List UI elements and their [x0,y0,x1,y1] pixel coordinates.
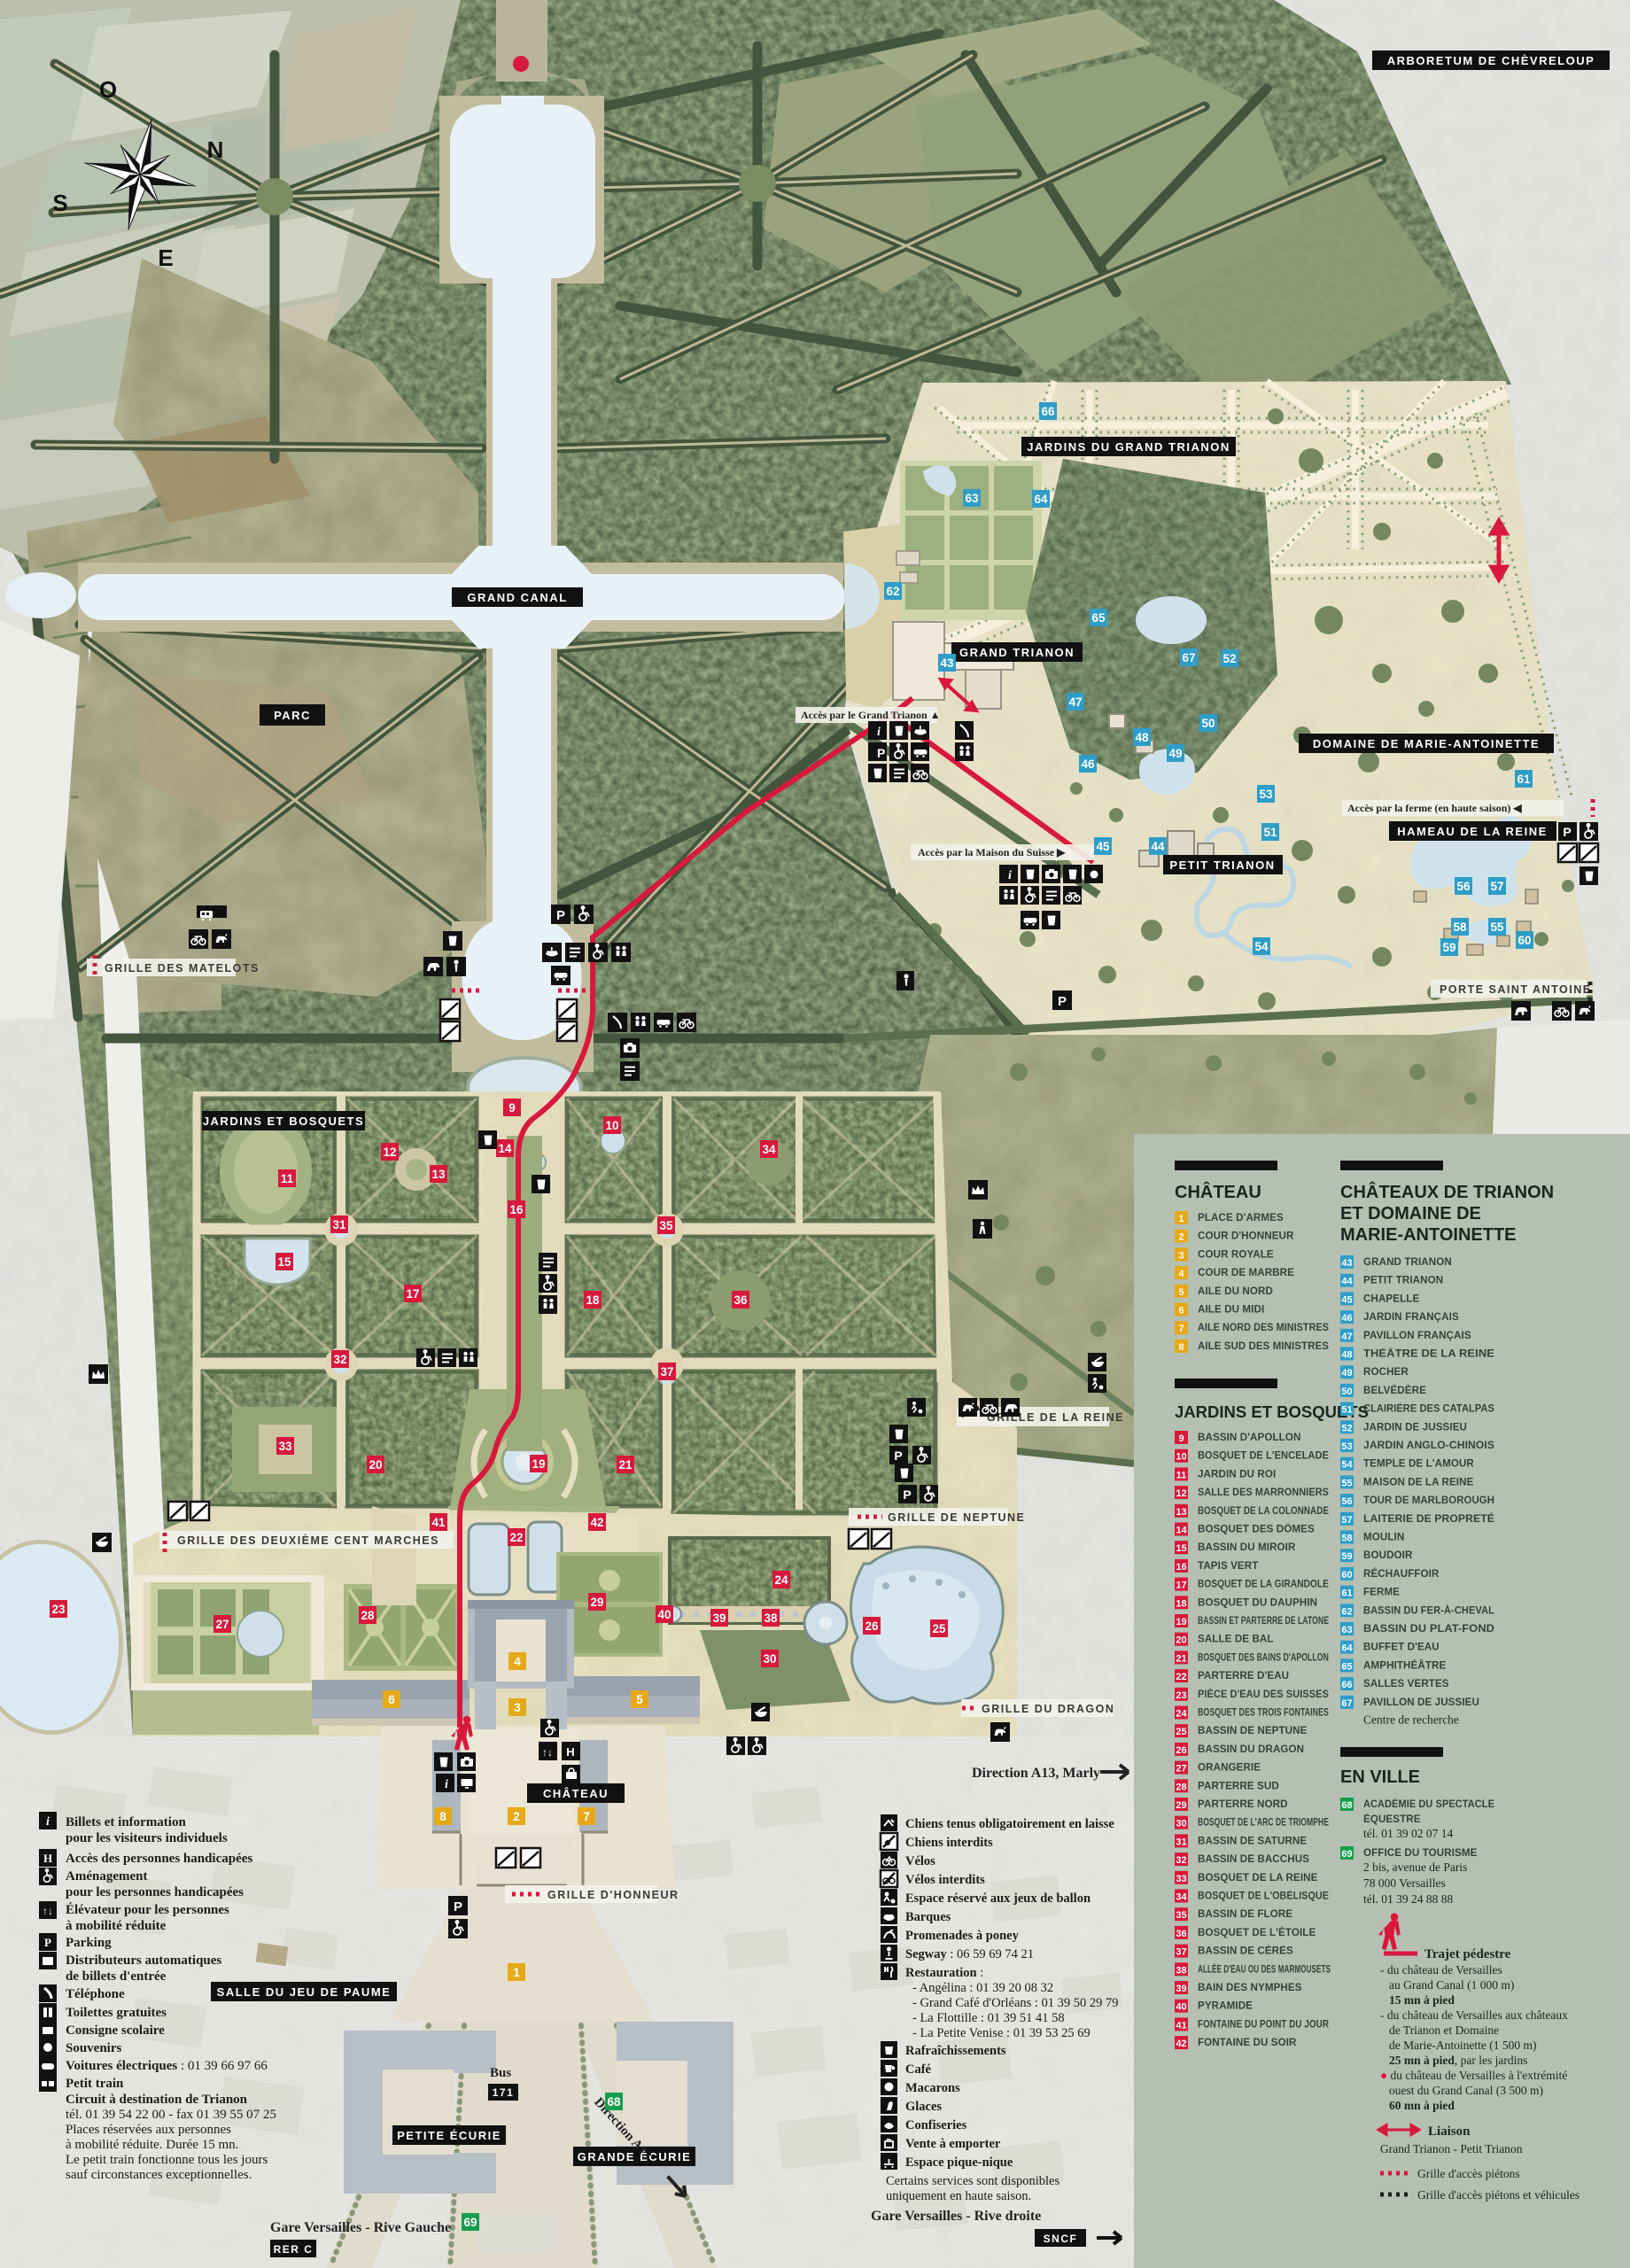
svg-text:PARTERRE NORD: PARTERRE NORD [1198,1798,1288,1810]
svg-text:EN VILLE: EN VILLE [1340,1767,1420,1787]
svg-text:6: 6 [388,1693,395,1706]
svg-text:17: 17 [406,1287,419,1301]
svg-text:37: 37 [660,1365,673,1379]
svg-text:26: 26 [1176,1745,1186,1756]
svg-text:ÉQUESTRE: ÉQUESTRE [1363,1814,1421,1825]
svg-text:P: P [894,1449,902,1463]
svg-text:2: 2 [513,1810,520,1823]
svg-text:8: 8 [1178,1342,1184,1353]
svg-text:10: 10 [1176,1452,1186,1463]
svg-text:49: 49 [1168,747,1182,760]
svg-text:BASSIN DE BACCHUS: BASSIN DE BACCHUS [1198,1853,1309,1865]
svg-text:Téléphone: Téléphone [66,1987,125,2001]
svg-text:Billets et information: Billets et information [66,1815,186,1829]
svg-text:33: 33 [278,1440,292,1453]
svg-text:LAITERIE DE PROPRETÉ: LAITERIE DE PROPRETÉ [1363,1513,1494,1525]
svg-text:Rafraîchissements: Rafraîchissements [905,2044,1006,2058]
svg-text:65: 65 [1341,1661,1352,1672]
svg-text:58: 58 [1453,920,1467,934]
svg-text:AMPHITHÉÂTRE: AMPHITHÉÂTRE [1363,1659,1446,1671]
svg-text:JARDIN ANGLO-CHINOIS: JARDIN ANGLO-CHINOIS [1363,1440,1494,1451]
svg-text:BASSIN DU DRAGON: BASSIN DU DRAGON [1198,1744,1304,1755]
svg-text:E: E [158,245,173,271]
svg-text:Bus: Bus [490,2066,511,2080]
svg-text:Accès par le Grand Trianon ▲: Accès par le Grand Trianon ▲ [801,709,941,721]
svg-text:Grand Trianon - Petit Trianon: Grand Trianon - Petit Trianon [1380,2142,1523,2155]
svg-text:Aménagement: Aménagement [66,1869,147,1884]
svg-text:- du château de Versailles aux: - du château de Versailles aux châteaux [1380,2008,1568,2022]
svg-text:26: 26 [865,1619,879,1633]
svg-text:TAPIS VERT: TAPIS VERT [1198,1560,1258,1572]
svg-text:34: 34 [762,1143,776,1156]
svg-text:FONTAINE DU POINT DU JOUR: FONTAINE DU POINT DU JOUR [1198,2018,1329,2030]
svg-text:Vélos interdits: Vélos interdits [905,1873,985,1887]
svg-text:Chiens tenus obligatoirement e: Chiens tenus obligatoirement en laisse [905,1817,1114,1831]
svg-text:51: 51 [1263,826,1277,839]
svg-text:Certains services sont disponi: Certains services sont disponibles [886,2174,1059,2188]
svg-text:56: 56 [1456,880,1471,893]
svg-text:58: 58 [1341,1534,1352,1544]
svg-text:HAMEAU DE LA REINE: HAMEAU DE LA REINE [1397,825,1548,838]
svg-text:JARDIN DE JUSSIEU: JARDIN DE JUSSIEU [1363,1421,1467,1433]
svg-text:PETIT TRIANON: PETIT TRIANON [1169,858,1275,872]
svg-text:32: 32 [333,1353,346,1366]
svg-text:43: 43 [1341,1258,1352,1269]
svg-text:O: O [99,76,117,103]
svg-text:JARDINS DU GRAND TRIANON: JARDINS DU GRAND TRIANON [1027,440,1230,454]
svg-text:P: P [454,1899,462,1915]
svg-text:37: 37 [1176,1947,1186,1958]
svg-text:CLAIRIÈRE DES CATALPAS: CLAIRIÈRE DES CATALPAS [1363,1403,1494,1415]
svg-text:43: 43 [940,656,954,670]
svg-text:36: 36 [733,1293,748,1307]
svg-text:Voitures électriques : 01 39 6: Voitures électriques : 01 39 66 97 66 [66,2059,268,2073]
svg-text:BOSQUET DE L'ARC DE TRIOMPHE: BOSQUET DE L'ARC DE TRIOMPHE [1198,1817,1329,1829]
svg-text:13: 13 [431,1168,446,1181]
svg-text:64: 64 [1034,493,1048,506]
svg-text:ACADÉMIE DU SPECTACLE: ACADÉMIE DU SPECTACLE [1363,1798,1494,1810]
svg-text:49: 49 [1341,1368,1352,1379]
svg-text:9: 9 [508,1101,516,1115]
svg-text:57: 57 [1490,880,1503,893]
svg-text:ALLÉE D'EAU OU DES MARMOUSETS: ALLÉE D'EAU OU DES MARMOUSETS [1198,1963,1331,1975]
svg-text:29: 29 [590,1596,603,1609]
svg-text:44: 44 [1151,840,1165,853]
svg-text:18: 18 [586,1293,600,1307]
svg-text:44: 44 [1341,1277,1353,1287]
svg-text:46: 46 [1341,1313,1352,1324]
svg-text:MARIE-ANTOINETTE: MARIE-ANTOINETTE [1340,1225,1517,1245]
svg-text:Grille d'accès piétons et véhi: Grille d'accès piétons et véhicules [1417,2188,1580,2202]
svg-text:14: 14 [1176,1526,1187,1536]
svg-text:ROCHER: ROCHER [1363,1366,1409,1378]
svg-text:Places réservées aux personnes: Places réservées aux personnes [66,2123,231,2137]
svg-text:41: 41 [431,1516,446,1529]
svg-text:Confiseries: Confiseries [905,2118,967,2132]
svg-text:DOMAINE DE MARIE-ANTOINETTE: DOMAINE DE MARIE-ANTOINETTE [1313,737,1540,750]
svg-text:BASSIN DE NEPTUNE: BASSIN DE NEPTUNE [1198,1725,1308,1736]
svg-text:H: H [566,1745,574,1759]
svg-text:BOSQUET DE L'ENCELADE: BOSQUET DE L'ENCELADE [1198,1450,1329,1462]
svg-text:SALLE DE BAL: SALLE DE BAL [1198,1634,1274,1645]
svg-text:PLACE D'ARMES: PLACE D'ARMES [1198,1212,1284,1223]
svg-text:Centre de recherche: Centre de recherche [1363,1713,1459,1727]
svg-text:BASSIN DE CÉRÈS: BASSIN DE CÉRÈS [1198,1946,1293,1957]
svg-text:de Trianon et Domaine: de Trianon et Domaine [1389,2023,1499,2037]
svg-text:Petit train: Petit train [66,2077,124,2091]
svg-text:MAISON DE LA REINE: MAISON DE LA REINE [1363,1476,1474,1487]
svg-text:Promenades à poney: Promenades à poney [905,1929,1020,1943]
svg-text:tél. 01 39 54 22 00 - fax 01 3: tél. 01 39 54 22 00 - fax 01 39 55 07 25 [66,2108,276,2122]
svg-text:JARDIN FRANÇAIS: JARDIN FRANÇAIS [1363,1311,1459,1323]
svg-text:Gare Versailles - Rive Gauche: Gare Versailles - Rive Gauche [270,2220,451,2235]
svg-text:15: 15 [1176,1543,1186,1554]
svg-text:PAVILLON FRANÇAIS: PAVILLON FRANÇAIS [1363,1330,1471,1341]
svg-text:23: 23 [51,1603,66,1616]
svg-text:30: 30 [763,1652,776,1666]
svg-text:2 bis, avenue de Paris: 2 bis, avenue de Paris [1363,1860,1467,1874]
svg-text:34: 34 [1176,1892,1187,1903]
svg-text:Café: Café [905,2062,932,2077]
svg-text:59: 59 [1341,1551,1352,1562]
svg-text:Accès par la Maison du Suisse: Accès par la Maison du Suisse ▶ [918,846,1066,858]
svg-text:53: 53 [1259,788,1273,801]
svg-text:PIÈCE D'EAU DES SUISSES: PIÈCE D'EAU DES SUISSES [1198,1689,1329,1700]
svg-text:28: 28 [361,1609,375,1622]
svg-text:BOSQUET DES TROIS FONTAINES: BOSQUET DES TROIS FONTAINES [1198,1707,1329,1719]
svg-text:18: 18 [1176,1598,1186,1609]
svg-text:BOSQUET DE LA REINE: BOSQUET DE LA REINE [1198,1872,1318,1884]
svg-text:BOUDOIR: BOUDOIR [1363,1550,1413,1561]
svg-text:5: 5 [1178,1287,1184,1298]
svg-text:- La Flottille : 01 39 51 41 5: - La Flottille : 01 39 51 41 58 [912,2011,1065,2025]
svg-text:RER C: RER C [274,2243,314,2256]
svg-text:39: 39 [1176,1984,1186,1994]
svg-text:GRILLE D'HONNEUR: GRILLE D'HONNEUR [547,1889,679,1901]
svg-text:BOSQUET DU DAUPHIN: BOSQUET DU DAUPHIN [1198,1596,1317,1608]
svg-text:à mobilité réduite. Durée 15 m: à mobilité réduite. Durée 15 mn. [66,2138,238,2152]
svg-text:62: 62 [1341,1606,1352,1617]
svg-text:20: 20 [369,1458,382,1472]
svg-text:de billets d'entrée: de billets d'entrée [66,1969,167,1984]
svg-text:42: 42 [1176,2039,1186,2049]
svg-text:CHAPELLE: CHAPELLE [1363,1293,1419,1304]
svg-text:28: 28 [1176,1782,1186,1792]
svg-text:32: 32 [1176,1855,1186,1866]
svg-text:Gare Versailles - Rive droite: Gare Versailles - Rive droite [871,2209,1041,2224]
svg-text:Direction A13, Marly: Direction A13, Marly [972,1766,1100,1781]
svg-text:Circuit à destination de Trian: Circuit à destination de Trianon [66,2093,248,2107]
svg-text:Vélos: Vélos [905,1854,935,1868]
svg-text:P: P [903,1487,911,1502]
svg-text:42: 42 [590,1516,603,1529]
svg-text:10: 10 [605,1119,618,1132]
svg-text:48: 48 [1341,1350,1352,1361]
svg-text:55: 55 [1341,1478,1352,1488]
svg-text:PETIT TRIANON: PETIT TRIANON [1363,1275,1443,1286]
svg-text:BOSQUET DE L'ÉTOILE: BOSQUET DE L'ÉTOILE [1198,1927,1316,1938]
svg-text:● du château de Versailles à l: ● du château de Versailles à l'extrémité [1380,2069,1567,2082]
svg-text:TEMPLE DE L'AMOUR: TEMPLE DE L'AMOUR [1363,1458,1474,1470]
svg-text:uniquement en haute saison.: uniquement en haute saison. [886,2189,1031,2203]
svg-text:29: 29 [1176,1800,1186,1811]
svg-text:H: H [43,1852,52,1865]
svg-text:7: 7 [583,1810,590,1823]
svg-text:8: 8 [439,1810,446,1823]
svg-text:ORANGERIE: ORANGERIE [1198,1762,1261,1774]
svg-text:15: 15 [277,1255,291,1269]
svg-text:Accès des personnes handicapée: Accès des personnes handicapées [66,1852,252,1866]
svg-text:ouest du Grand Canal (3 500 m): ouest du Grand Canal (3 500 m) [1389,2084,1543,2097]
svg-text:38: 38 [1176,1965,1186,1976]
svg-text:2: 2 [1178,1232,1184,1243]
svg-text:45: 45 [1096,840,1110,853]
svg-text:21: 21 [1176,1653,1186,1664]
svg-text:PARTERRE SUD: PARTERRE SUD [1198,1780,1279,1791]
svg-text:3: 3 [1178,1250,1184,1261]
svg-text:Toilettes gratuites: Toilettes gratuites [66,2006,167,2020]
svg-text:36: 36 [1176,1929,1186,1939]
svg-text:Élévateur pour les personnes: Élévateur pour les personnes [66,1902,229,1917]
svg-text:56: 56 [1341,1496,1352,1507]
svg-text:1: 1 [1178,1214,1184,1224]
svg-text:Espace réservé aux jeux de bal: Espace réservé aux jeux de ballon [905,1891,1091,1906]
svg-text:↑↓: ↑↓ [43,1905,53,1917]
svg-text:30: 30 [1176,1819,1186,1829]
svg-text:31: 31 [1176,1837,1186,1847]
svg-text:GRILLE DES MATELOTS: GRILLE DES MATELOTS [105,962,260,975]
svg-text:Grille d'accès piétons: Grille d'accès piétons [1417,2167,1520,2180]
svg-text:22: 22 [1176,1672,1186,1682]
svg-text:41: 41 [1176,2020,1186,2031]
svg-text:JARDINS ET BOSQUETS: JARDINS ET BOSQUETS [203,1115,364,1128]
svg-text:54: 54 [1254,940,1269,953]
svg-text:53: 53 [1341,1441,1352,1452]
svg-text:Distributeurs automatiques: Distributeurs automatiques [66,1953,221,1968]
svg-text:48: 48 [1135,731,1149,744]
svg-text:40: 40 [657,1608,671,1621]
svg-text:33: 33 [1176,1874,1186,1884]
svg-text:Vente à emporter: Vente à emporter [905,2137,1001,2151]
svg-text:BASSIN ET PARTERRE DE LATONE: BASSIN ET PARTERRE DE LATONE [1198,1615,1329,1627]
svg-text:17: 17 [1176,1581,1186,1591]
svg-text:N: N [207,136,224,163]
svg-text:CHÂTEAUX DE TRIANON: CHÂTEAUX DE TRIANON [1340,1181,1554,1202]
svg-text:au Grand Canal (1 000 m): au Grand Canal (1 000 m) [1389,1978,1514,1992]
svg-text:GRAND TRIANON: GRAND TRIANON [1363,1256,1452,1268]
svg-text:BASSIN D'APOLLON: BASSIN D'APOLLON [1198,1432,1300,1443]
svg-text:22: 22 [509,1531,523,1544]
svg-text:- La Petite Venise : 01 39 53: - La Petite Venise : 01 39 53 25 69 [912,2026,1091,2040]
svg-text:SALLE DES MARRONNIERS: SALLE DES MARRONNIERS [1198,1487,1329,1498]
svg-text:Trajet pédestre: Trajet pédestre [1424,1947,1511,1961]
svg-text:4: 4 [514,1655,521,1668]
svg-text:P: P [44,1936,51,1949]
svg-text:AILE SUD DES MINISTRES: AILE SUD DES MINISTRES [1198,1340,1329,1352]
svg-text:Barques: Barques [905,1910,951,1924]
svg-text:78 000 Versailles: 78 000 Versailles [1363,1876,1446,1890]
svg-text:66: 66 [1041,405,1055,418]
svg-text:11: 11 [281,1172,294,1185]
svg-text:tél. 01 39 02 07 14: tél. 01 39 02 07 14 [1363,1827,1453,1840]
svg-text:67: 67 [1341,1698,1352,1709]
svg-text:21: 21 [618,1458,633,1472]
svg-text:TOUR DE MARLBOROUGH: TOUR DE MARLBOROUGH [1363,1495,1494,1506]
svg-text:i: i [445,1778,448,1791]
svg-text:54: 54 [1341,1460,1353,1471]
svg-text:52: 52 [1222,652,1236,665]
svg-text:↑↓: ↑↓ [542,1746,553,1759]
svg-text:27: 27 [1176,1764,1186,1775]
svg-text:pour les personnes handicapées: pour les personnes handicapées [66,1885,244,1899]
svg-text:Restauration :: Restauration : [905,1966,983,1980]
svg-text:Chiens interdits: Chiens interdits [905,1836,993,1850]
svg-text:4: 4 [1178,1269,1184,1279]
svg-text:60: 60 [1517,934,1531,947]
svg-text:25: 25 [1176,1727,1186,1737]
svg-text:63: 63 [1341,1625,1352,1635]
svg-text:FONTAINE DU SOIR: FONTAINE DU SOIR [1198,2037,1297,2048]
svg-text:5: 5 [636,1693,643,1706]
svg-text:P: P [1563,825,1571,839]
svg-text:PORTE SAINT ANTOINE: PORTE SAINT ANTOINE [1440,983,1592,996]
svg-text:sauf circonstances exceptionne: sauf circonstances exceptionnelles. [66,2168,252,2182]
svg-text:60: 60 [1341,1570,1352,1581]
svg-text:19: 19 [532,1457,545,1471]
svg-text:ET DOMAINE DE: ET DOMAINE DE [1340,1204,1481,1223]
svg-text:SALLE DU JEU DE PAUME: SALLE DU JEU DE PAUME [217,1985,392,1999]
svg-text:Liaison: Liaison [1428,2124,1471,2139]
svg-text:Espace pique-nique: Espace pique-nique [905,2155,1013,2170]
svg-text:GRILLE DES DEUXIÈME CENT MARCH: GRILLE DES DEUXIÈME CENT MARCHES [177,1534,439,1547]
svg-text:59: 59 [1442,941,1455,954]
svg-text:Souvenirs: Souvenirs [66,2041,122,2055]
svg-text:i: i [46,1815,50,1829]
svg-text:PARC: PARC [274,709,311,722]
svg-text:12: 12 [1176,1488,1186,1499]
svg-text:GRILLE DU DRAGON: GRILLE DU DRAGON [982,1703,1114,1715]
svg-text:35: 35 [1176,1910,1186,1921]
svg-text:9: 9 [1178,1433,1184,1444]
svg-text:BUFFET D'EAU: BUFFET D'EAU [1363,1642,1440,1653]
svg-text:ARBORETUM DE CHÈVRELOUP: ARBORETUM DE CHÈVRELOUP [1387,54,1595,67]
svg-text:BOSQUET DES BAINS D'APOLLON: BOSQUET DES BAINS D'APOLLON [1198,1651,1329,1663]
svg-text:25 mn à pied, par les jardins: 25 mn à pied, par les jardins [1389,2054,1527,2067]
svg-text:S: S [52,190,67,216]
svg-text:1: 1 [513,1966,520,1979]
svg-text:35: 35 [659,1219,673,1232]
svg-text:50: 50 [1201,717,1215,730]
svg-text:AILE NORD DES MINISTRES: AILE NORD DES MINISTRES [1198,1322,1329,1333]
svg-text:PAVILLON DE JUSSIEU: PAVILLON DE JUSSIEU [1363,1697,1479,1708]
svg-text:68: 68 [1341,1800,1352,1811]
svg-text:- Angélina : 01 39 20 08 32: - Angélina : 01 39 20 08 32 [912,1981,1053,1995]
svg-text:14: 14 [498,1142,512,1155]
svg-text:AILE DU MIDI: AILE DU MIDI [1198,1304,1264,1316]
svg-text:171: 171 [493,2086,515,2099]
svg-text:50: 50 [1341,1386,1352,1397]
svg-text:OFFICE DU TOURISME: OFFICE DU TOURISME [1363,1847,1478,1859]
svg-text:38: 38 [764,1612,778,1625]
svg-text:MOULIN: MOULIN [1363,1532,1404,1543]
svg-text:BOSQUET DES DÔMES: BOSQUET DES DÔMES [1198,1524,1315,1535]
svg-text:BELVÉDÈRE: BELVÉDÈRE [1363,1385,1426,1396]
svg-text:6: 6 [1178,1306,1184,1317]
svg-text:40: 40 [1176,2002,1186,2013]
svg-text:64: 64 [1341,1643,1353,1654]
svg-text:i: i [877,726,881,739]
svg-text:45: 45 [1341,1294,1352,1305]
svg-text:47: 47 [1068,695,1082,709]
svg-text:Le petit train fonctionne tous: Le petit train fonctionne tous les jours [66,2153,268,2167]
svg-text:57: 57 [1341,1515,1352,1526]
svg-text:COUR D'HONNEUR: COUR D'HONNEUR [1198,1231,1294,1242]
svg-text:BOSQUET DE L'OBÉLISQUE: BOSQUET DE L'OBÉLISQUE [1198,1891,1329,1902]
svg-text:AILE DU NORD: AILE DU NORD [1198,1285,1273,1297]
svg-text:RÉCHAUFFOIR: RÉCHAUFFOIR [1363,1568,1440,1580]
svg-text:Segway : 06 59 69 74 21: Segway : 06 59 69 74 21 [905,1947,1034,1961]
svg-text:CHÂTEAU: CHÂTEAU [543,1787,609,1800]
svg-text:52: 52 [1341,1423,1352,1433]
svg-text:PYRAMIDE: PYRAMIDE [1198,2000,1253,2012]
svg-text:51: 51 [1341,1405,1352,1416]
svg-text:GRILLE DE NEPTUNE: GRILLE DE NEPTUNE [888,1511,1025,1524]
svg-text:7: 7 [1178,1324,1184,1334]
svg-text:24: 24 [1176,1709,1187,1720]
svg-text:12: 12 [383,1146,396,1159]
svg-text:46: 46 [1081,757,1095,771]
svg-text:39: 39 [712,1612,726,1625]
svg-text:P: P [1058,994,1067,1009]
svg-text:65: 65 [1091,611,1106,625]
svg-text:COUR DE MARBRE: COUR DE MARBRE [1198,1267,1294,1278]
svg-text:SALLES VERTES: SALLES VERTES [1363,1678,1449,1689]
svg-text:Accès par la ferme (en haute s: Accès par la ferme (en haute saison) ◀ [1347,802,1522,814]
svg-text:Glaces: Glaces [905,2100,942,2114]
svg-text:15 mn à pied: 15 mn à pied [1389,1993,1455,2007]
svg-text:19: 19 [1176,1617,1186,1627]
svg-text:P: P [877,746,885,760]
svg-text:BAIN DES NYMPHES: BAIN DES NYMPHES [1198,1982,1302,1993]
svg-text:FERME: FERME [1363,1587,1400,1598]
svg-text:BASSIN DE SATURNE: BASSIN DE SATURNE [1198,1835,1307,1846]
svg-text:55: 55 [1490,920,1504,934]
svg-text:tél. 01 39 24 88 88: tél. 01 39 24 88 88 [1363,1892,1453,1906]
svg-text:de Marie-Antoinette (1 500 m): de Marie-Antoinette (1 500 m) [1389,2039,1536,2052]
svg-text:11: 11 [1176,1470,1187,1480]
svg-text:BOSQUET DE LA COLONNADE: BOSQUET DE LA COLONNADE [1198,1505,1329,1517]
svg-text:PARTERRE D'EAU: PARTERRE D'EAU [1198,1670,1289,1682]
svg-text:BASSIN DU FER-À-CHEVAL: BASSIN DU FER-À-CHEVAL [1363,1604,1494,1616]
svg-text:27: 27 [215,1618,229,1631]
svg-text:BASSIN DU PLAT-FOND: BASSIN DU PLAT-FOND [1363,1623,1494,1635]
svg-text:67: 67 [1182,651,1195,664]
svg-text:31: 31 [332,1218,346,1231]
svg-text:i: i [1008,869,1012,882]
svg-text:BASSIN DE FLORE: BASSIN DE FLORE [1198,1908,1292,1920]
svg-text:PETITE ÉCURIE: PETITE ÉCURIE [397,2129,501,2142]
svg-text:Parking: Parking [66,1936,112,1950]
svg-text:61: 61 [1341,1588,1352,1599]
svg-text:13: 13 [1176,1507,1186,1518]
svg-text:63: 63 [965,492,979,505]
svg-text:47: 47 [1341,1332,1352,1342]
svg-text:25: 25 [932,1622,946,1635]
svg-text:SNCF: SNCF [1044,2233,1078,2245]
svg-text:3: 3 [514,1701,521,1714]
svg-text:24: 24 [774,1573,788,1587]
svg-text:69: 69 [1341,1849,1352,1860]
